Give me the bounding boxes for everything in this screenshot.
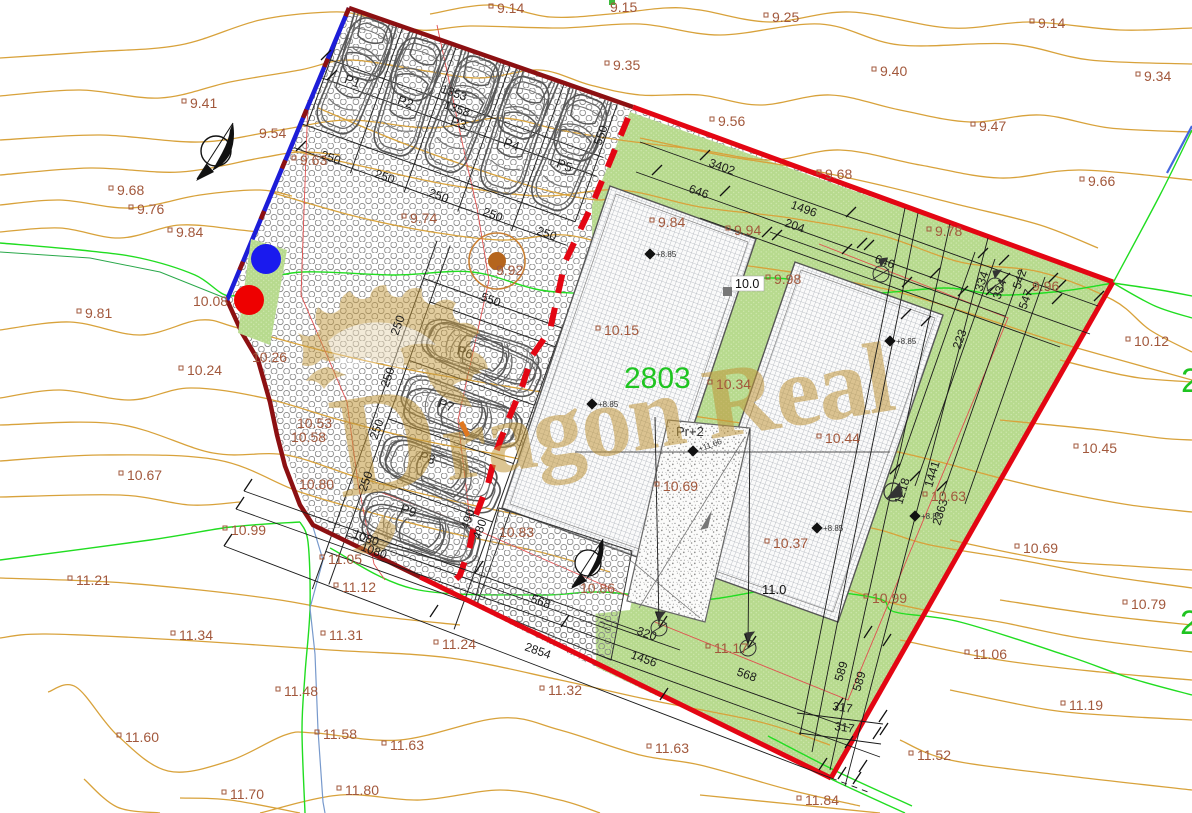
svg-text:10.69: 10.69 <box>663 478 698 494</box>
svg-text:9.25: 9.25 <box>772 9 799 25</box>
svg-text:9.68: 9.68 <box>117 182 144 198</box>
svg-text:11.70: 11.70 <box>230 786 264 802</box>
svg-text:+8.85: +8.85 <box>823 524 844 533</box>
svg-text:9.54: 9.54 <box>259 125 286 141</box>
svg-text:9.56: 9.56 <box>718 113 745 129</box>
svg-text:11.32: 11.32 <box>548 682 582 698</box>
svg-text:11.21: 11.21 <box>76 572 110 588</box>
svg-text:11.80: 11.80 <box>345 782 379 798</box>
svg-text:28: 28 <box>1181 362 1192 400</box>
svg-text:10.37: 10.37 <box>773 535 808 551</box>
svg-text:11.0: 11.0 <box>762 582 786 597</box>
svg-text:10.08: 10.08 <box>193 293 228 309</box>
svg-text:10.63: 10.63 <box>931 488 966 504</box>
svg-text:10.99: 10.99 <box>872 590 907 606</box>
svg-text:11.60: 11.60 <box>125 729 159 745</box>
svg-text:11.05: 11.05 <box>328 551 362 567</box>
svg-text:11.52: 11.52 <box>917 747 951 763</box>
svg-text:9.76: 9.76 <box>137 201 164 217</box>
svg-text:10.26: 10.26 <box>252 349 287 365</box>
svg-text:10.86: 10.86 <box>580 580 615 596</box>
svg-text:11.24: 11.24 <box>442 636 476 652</box>
svg-text:9.94: 9.94 <box>734 222 761 238</box>
svg-text:11.48: 11.48 <box>284 683 318 699</box>
svg-text:11.84: 11.84 <box>805 792 839 808</box>
svg-text:11.19: 11.19 <box>1069 697 1103 713</box>
svg-text:+8.85: +8.85 <box>598 400 619 409</box>
svg-text:10.24: 10.24 <box>187 362 222 378</box>
svg-text:9.84: 9.84 <box>176 224 203 240</box>
svg-text:9.81: 9.81 <box>85 305 112 321</box>
svg-text:11.12: 11.12 <box>342 579 376 595</box>
svg-text:10.79: 10.79 <box>1131 596 1166 612</box>
svg-text:+8.85: +8.85 <box>656 250 677 259</box>
svg-text:10.58: 10.58 <box>291 429 326 445</box>
svg-text:+8.85: +8.85 <box>896 337 917 346</box>
svg-text:11.63: 11.63 <box>390 737 424 753</box>
svg-text:10.67: 10.67 <box>127 467 162 483</box>
svg-text:317: 317 <box>834 719 856 736</box>
svg-text:11.31: 11.31 <box>329 627 363 643</box>
svg-text:9.98: 9.98 <box>774 271 801 287</box>
svg-text:9.41: 9.41 <box>190 95 217 111</box>
svg-text:9.40: 9.40 <box>880 63 907 79</box>
svg-text:11.34: 11.34 <box>179 627 213 643</box>
svg-text:11.63: 11.63 <box>655 740 689 756</box>
svg-text:317: 317 <box>832 699 854 716</box>
svg-text:10.80: 10.80 <box>299 476 334 492</box>
svg-text:9.78: 9.78 <box>935 223 962 239</box>
svg-text:9.66: 9.66 <box>1088 173 1115 189</box>
svg-text:9.84: 9.84 <box>658 214 685 230</box>
svg-text:9.14: 9.14 <box>1038 15 1065 31</box>
svg-text:10.34: 10.34 <box>716 376 751 392</box>
svg-text:28: 28 <box>1180 604 1192 642</box>
svg-text:10.83: 10.83 <box>499 524 534 540</box>
svg-text:10.69: 10.69 <box>1023 540 1058 556</box>
svg-text:11.17: 11.17 <box>714 640 748 656</box>
svg-text:11.06: 11.06 <box>973 646 1007 662</box>
svg-text:9.63: 9.63 <box>300 152 327 168</box>
svg-text:9.34: 9.34 <box>1144 68 1171 84</box>
svg-text:9.15: 9.15 <box>610 0 637 15</box>
svg-text:10.0: 10.0 <box>735 277 759 291</box>
svg-text:9.47: 9.47 <box>979 118 1006 134</box>
svg-text:10.45: 10.45 <box>1082 440 1117 456</box>
svg-text:10.44: 10.44 <box>825 430 860 446</box>
svg-text:10.99: 10.99 <box>231 522 266 538</box>
svg-text:9.68: 9.68 <box>825 166 852 182</box>
svg-text:10.12: 10.12 <box>1134 333 1169 349</box>
svg-text:10.15: 10.15 <box>604 322 639 338</box>
svg-text:+8.85: +8.85 <box>921 512 942 521</box>
svg-text:11.58: 11.58 <box>323 726 357 742</box>
svg-text:9.96: 9.96 <box>1032 278 1059 294</box>
svg-text:9.14: 9.14 <box>497 0 524 16</box>
svg-text:9.74: 9.74 <box>410 210 437 226</box>
svg-text:2803: 2803 <box>624 362 691 395</box>
svg-text:9.92: 9.92 <box>496 262 523 278</box>
svg-text:9.35: 9.35 <box>613 57 640 73</box>
